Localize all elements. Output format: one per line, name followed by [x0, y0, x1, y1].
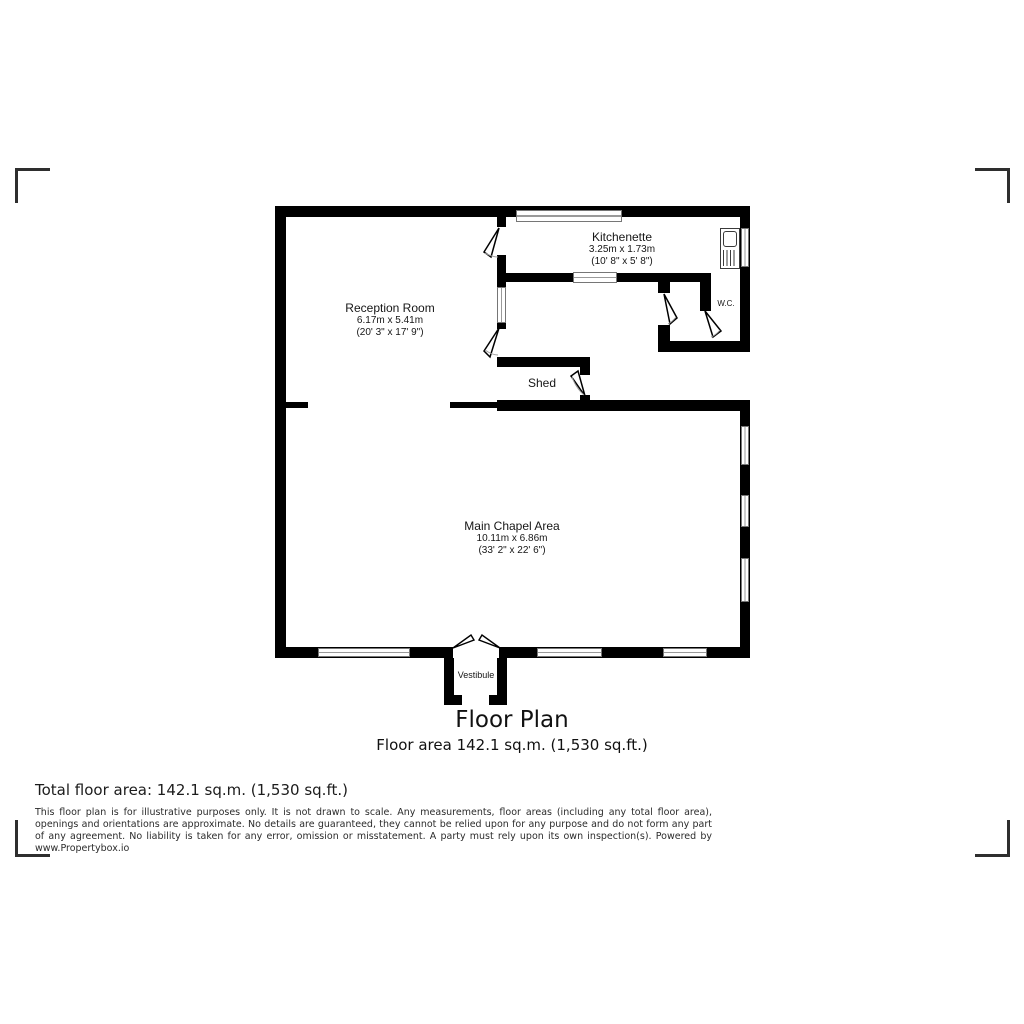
room-dims-imperial: (20' 3" x 17' 9"): [345, 327, 434, 339]
door-lobby-hall: [664, 294, 677, 324]
door-vestibule-left: [453, 635, 474, 648]
label-reception-room: Reception Room 6.17m x 5.41m (20' 3" x 1…: [345, 302, 434, 339]
door-wc: [705, 311, 721, 337]
room-dims-metric: 3.25m x 1.73m: [589, 244, 655, 256]
door-reception-kitchenette: [484, 228, 499, 257]
room-dims-metric: 10.11m x 6.86m: [464, 533, 559, 545]
label-vestibule: Vestibule: [458, 669, 495, 682]
floor-plan-page: Reception Room 6.17m x 5.41m (20' 3" x 1…: [0, 0, 1024, 1024]
label-main-chapel: Main Chapel Area 10.11m x 6.86m (33' 2" …: [464, 520, 559, 557]
door-reception-lobby: [484, 328, 499, 357]
room-dims-metric: 6.17m x 5.41m: [345, 315, 434, 327]
plan-subtitle: Floor area 142.1 sq.m. (1,530 sq.ft.): [376, 736, 647, 754]
room-name: Shed: [528, 377, 556, 390]
door-layer: [0, 0, 1024, 1024]
room-name: Kitchenette: [589, 231, 655, 244]
label-wc: W.C.: [717, 297, 734, 310]
label-kitchenette: Kitchenette 3.25m x 1.73m (10' 8" x 5' 8…: [589, 231, 655, 268]
room-name: Vestibule: [458, 669, 495, 682]
door-shed: [571, 371, 585, 396]
door-vestibule-right: [479, 635, 500, 648]
room-name: Main Chapel Area: [464, 520, 559, 533]
plan-title: Floor Plan: [455, 707, 568, 733]
disclaimer-text: This floor plan is for illustrative purp…: [35, 807, 712, 855]
room-name: W.C.: [717, 297, 734, 310]
room-name: Reception Room: [345, 302, 434, 315]
room-dims-imperial: (33' 2" x 22' 6"): [464, 545, 559, 557]
total-floor-area: Total floor area: 142.1 sq.m. (1,530 sq.…: [35, 781, 348, 799]
room-dims-imperial: (10' 8" x 5' 8"): [589, 256, 655, 268]
label-shed: Shed: [528, 377, 556, 390]
